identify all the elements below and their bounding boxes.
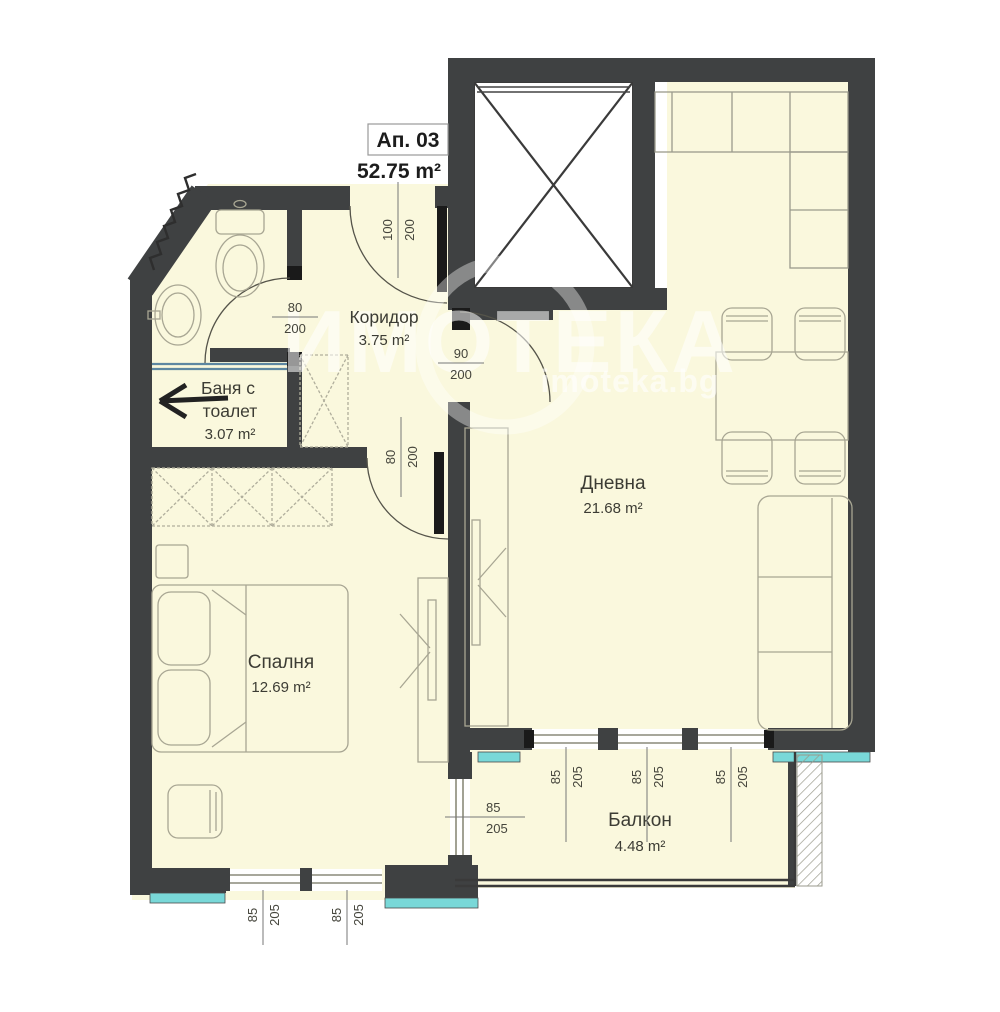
room-area-corridor: 3.75 m²: [359, 332, 410, 349]
wall-shower-stub: [210, 348, 290, 362]
svg-text:85: 85: [486, 800, 500, 815]
svg-text:200: 200: [405, 446, 420, 468]
svg-text:100: 100: [380, 219, 395, 241]
room-label-living: Дневна: [580, 473, 646, 494]
room-area-bathroom: 3.07 m²: [205, 426, 256, 443]
wall-corridor-top: [195, 186, 350, 210]
wall-corridor-bottom: [150, 447, 367, 468]
svg-text:80: 80: [383, 450, 398, 464]
svg-text:200: 200: [450, 367, 472, 382]
room-label-bedroom: Спалня: [248, 652, 314, 673]
svg-text:90: 90: [454, 346, 468, 361]
wall-entrance-jamb: [435, 186, 474, 208]
svg-text:205: 205: [735, 766, 750, 788]
svg-text:205: 205: [570, 766, 585, 788]
wall-left: [130, 276, 152, 895]
wall-living-bottom-right: [768, 728, 848, 750]
room-label-bathroom-2: тоалет: [203, 401, 258, 421]
svg-text:205: 205: [486, 821, 508, 836]
apartment-number: Ап. 03: [377, 129, 440, 152]
svg-text:200: 200: [402, 219, 417, 241]
svg-text:85: 85: [329, 908, 344, 922]
svg-text:85: 85: [548, 770, 563, 784]
svg-text:205: 205: [351, 904, 366, 926]
living-balcony-windows: [524, 728, 774, 750]
wall-bath-right-upper: [287, 198, 302, 268]
svg-text:200: 200: [284, 321, 306, 336]
svg-text:85: 85: [629, 770, 644, 784]
svg-text:85: 85: [245, 908, 260, 922]
wall-living-bottom-left: [448, 728, 532, 750]
floor-plan-drawing: ИМОТЕКА imoteka.bg Ап. 03 52.75 m² Корид…: [0, 0, 1000, 1012]
svg-text:205: 205: [651, 766, 666, 788]
wall-top: [448, 58, 875, 82]
wall-bedroom-window-end: [218, 868, 230, 891]
wall-balcony-left-bottom: [448, 855, 472, 870]
apartment-number-badge: Ап. 03 52.75 m²: [357, 124, 448, 183]
wall-shaft-right: [633, 82, 655, 310]
room-label-corridor: Коридор: [349, 307, 418, 327]
wall-balcony-left-top: [448, 752, 472, 779]
floor-plan-canvas: ИМОТЕКА imoteka.bg Ап. 03 52.75 m² Корид…: [0, 0, 1000, 1012]
room-area-living: 21.68 m²: [583, 500, 642, 517]
room-area-bedroom: 12.69 m²: [251, 679, 310, 696]
room-label-balcony: Балкон: [608, 810, 672, 831]
room-area-balcony: 4.48 m²: [615, 838, 666, 855]
room-label-bathroom-1: Баня с: [201, 378, 255, 398]
svg-text:85: 85: [713, 770, 728, 784]
apartment-total-area: 52.75 m²: [357, 160, 441, 183]
watermark-site: imoteka.bg: [541, 363, 720, 399]
neighbour-partition-hatch: [797, 755, 822, 886]
svg-text:205: 205: [267, 904, 282, 926]
wall-bedroom-bottom-left: [130, 868, 226, 893]
bedroom-windows: [230, 868, 382, 891]
wall-bedroom-right: [448, 402, 470, 755]
svg-text:80: 80: [288, 300, 302, 315]
